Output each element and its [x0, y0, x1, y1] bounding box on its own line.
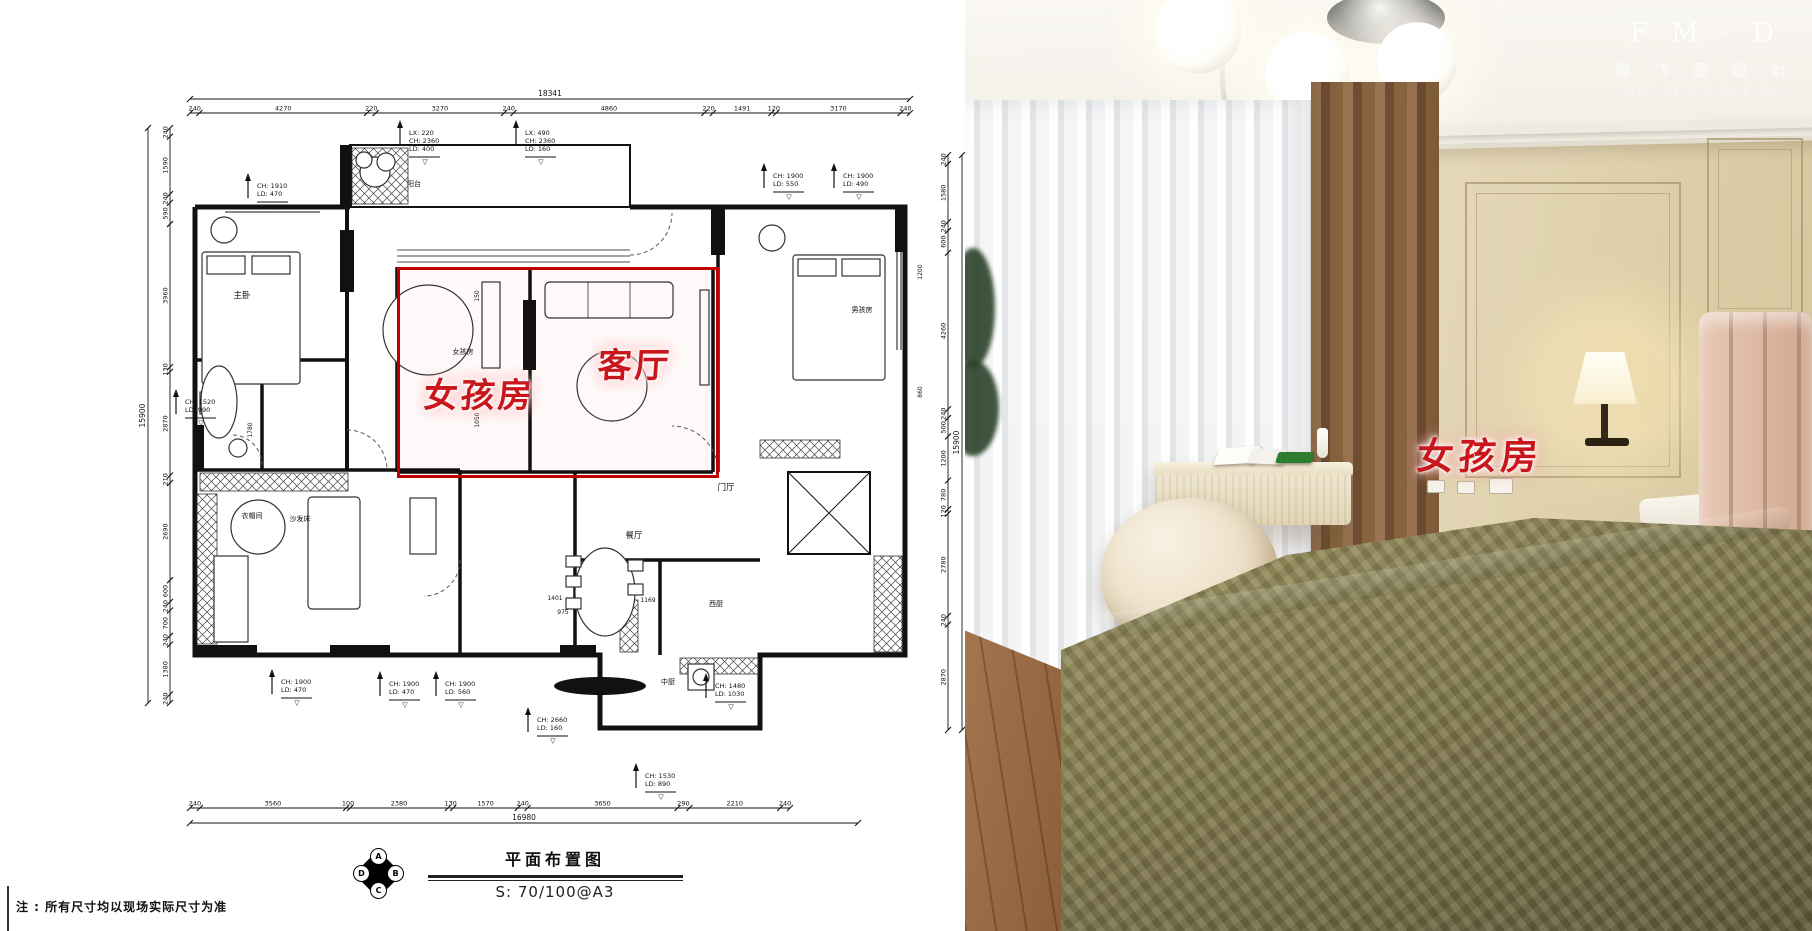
svg-text:500: 500 — [940, 421, 948, 433]
svg-text:1380: 1380 — [162, 661, 170, 678]
svg-text:130: 130 — [162, 363, 170, 375]
stamp-letter-a: A — [370, 848, 387, 865]
green-notebook — [1275, 452, 1315, 463]
svg-text:120: 120 — [940, 505, 948, 517]
svg-text:LD: 1030: LD: 1030 — [715, 690, 744, 698]
wall-socket — [1457, 481, 1475, 494]
stamp-diamond-icon: A B C D — [350, 846, 406, 902]
svg-text:主卧: 主卧 — [233, 290, 251, 301]
svg-text:▽: ▽ — [658, 793, 664, 801]
svg-text:门厅: 门厅 — [717, 482, 735, 493]
svg-text:240: 240 — [188, 105, 200, 113]
svg-text:780: 780 — [940, 489, 948, 501]
svg-text:CH: 1900: CH: 1900 — [281, 678, 311, 686]
svg-text:240: 240 — [940, 407, 948, 419]
svg-text:220: 220 — [702, 105, 714, 113]
svg-text:1570: 1570 — [477, 800, 494, 808]
svg-text:975: 975 — [557, 609, 569, 616]
svg-text:▽: ▽ — [270, 203, 276, 211]
watermark-en: HUI FEIMO DESIGN — [1615, 86, 1796, 95]
svg-text:16980: 16980 — [512, 813, 536, 822]
paper-edge-line — [7, 886, 9, 931]
svg-text:2380: 2380 — [391, 800, 408, 808]
svg-text:CH: 1900: CH: 1900 — [843, 172, 873, 180]
svg-text:LD: 560: LD: 560 — [445, 688, 470, 696]
svg-text:CH: 2660: CH: 2660 — [537, 716, 567, 724]
svg-text:1200: 1200 — [940, 450, 948, 467]
svg-text:3170: 3170 — [830, 105, 847, 113]
svg-text:4860: 4860 — [601, 105, 618, 113]
svg-text:240: 240 — [940, 220, 948, 232]
svg-text:240: 240 — [940, 153, 948, 165]
svg-text:4270: 4270 — [275, 105, 292, 113]
svg-text:240: 240 — [162, 634, 170, 646]
svg-text:2780: 2780 — [940, 556, 948, 573]
svg-text:120: 120 — [768, 105, 780, 113]
svg-text:240: 240 — [162, 692, 170, 704]
svg-text:衣帽间: 衣帽间 — [242, 511, 263, 520]
stamp-letter-d: D — [353, 865, 370, 882]
small-vase — [1317, 428, 1328, 458]
svg-text:590: 590 — [162, 207, 170, 219]
svg-text:2870: 2870 — [162, 415, 170, 432]
plan-label-living-room: 客厅 — [596, 338, 673, 387]
svg-text:LX: 490: LX: 490 — [525, 129, 550, 137]
plan-title: 平面布置图 — [420, 846, 690, 870]
svg-text:3650: 3650 — [594, 800, 611, 808]
svg-text:CH: 2360: CH: 2360 — [525, 137, 555, 145]
svg-text:860: 860 — [917, 386, 924, 398]
svg-text:▽: ▽ — [198, 419, 204, 427]
svg-text:130: 130 — [444, 800, 456, 808]
svg-text:240: 240 — [516, 800, 528, 808]
wall-socket — [1427, 480, 1445, 493]
svg-text:CH: 1530: CH: 1530 — [645, 772, 675, 780]
svg-text:700: 700 — [162, 617, 170, 629]
svg-text:1491: 1491 — [734, 105, 751, 113]
svg-text:1169: 1169 — [640, 597, 655, 604]
svg-text:餐厅: 餐厅 — [625, 531, 643, 541]
designer-watermark: F M · D 徽 飞 墨 設 計 HUI FEIMO DESIGN — [1615, 18, 1796, 95]
svg-text:LD: 550: LD: 550 — [773, 180, 798, 188]
floating-desk — [1153, 462, 1353, 475]
svg-text:240: 240 — [940, 614, 948, 626]
svg-text:阳台: 阳台 — [407, 179, 421, 188]
svg-text:240: 240 — [503, 105, 515, 113]
svg-text:▽: ▽ — [538, 158, 544, 166]
plan-scale: S: 70/100@A3 — [420, 883, 690, 901]
svg-text:240: 240 — [162, 600, 170, 612]
watermark-cn: 徽 飞 墨 設 計 — [1615, 57, 1796, 81]
svg-text:1200: 1200 — [917, 264, 924, 279]
svg-text:CH: 1900: CH: 1900 — [773, 172, 803, 180]
svg-text:15900: 15900 — [138, 403, 147, 427]
svg-text:沙发床: 沙发床 — [290, 514, 311, 523]
svg-text:240: 240 — [162, 192, 170, 204]
wall-molding-frame — [1707, 138, 1803, 320]
svg-text:西厨: 西厨 — [709, 600, 723, 608]
svg-text:3960: 3960 — [162, 287, 170, 304]
svg-text:LD: 400: LD: 400 — [409, 145, 434, 153]
svg-text:240: 240 — [162, 126, 170, 138]
svg-text:1590: 1590 — [162, 157, 170, 174]
watermark-logo: F M · D — [1615, 18, 1796, 49]
svg-text:▽: ▽ — [294, 699, 300, 707]
svg-text:CH: 1480: CH: 1480 — [715, 682, 745, 690]
svg-text:CH: 1900: CH: 1900 — [445, 680, 475, 688]
svg-text:LD: 470: LD: 470 — [281, 686, 306, 694]
svg-text:CH: 1520: CH: 1520 — [185, 398, 215, 406]
title-rule — [428, 875, 683, 881]
svg-text:CH: 1900: CH: 1900 — [389, 680, 419, 688]
stamp-letter-c: C — [370, 882, 387, 899]
svg-text:240: 240 — [899, 105, 911, 113]
floor-plan-panel: 1834124042702203270240486022014911203170… — [0, 0, 965, 931]
svg-text:100: 100 — [342, 800, 354, 808]
svg-text:240: 240 — [779, 800, 791, 808]
svg-text:▽: ▽ — [550, 737, 556, 745]
girl-room-photo: 女孩房 F M · D 徽 飞 墨 設 計 HUI FEIMO DESIGN — [965, 0, 1812, 931]
svg-text:LD: 490: LD: 490 — [843, 180, 868, 188]
svg-text:▽: ▽ — [402, 701, 408, 709]
svg-text:▽: ▽ — [422, 158, 428, 166]
svg-text:18341: 18341 — [538, 89, 562, 98]
svg-text:600: 600 — [940, 235, 948, 247]
svg-text:2690: 2690 — [162, 523, 170, 540]
plan-label-girl-room: 女孩房 — [422, 368, 536, 417]
design-presentation: 1834124042702203270240486022014911203170… — [0, 0, 1812, 931]
svg-text:220: 220 — [365, 105, 377, 113]
wall-socket — [1489, 478, 1513, 494]
svg-text:3560: 3560 — [265, 800, 282, 808]
svg-text:1401: 1401 — [547, 595, 562, 602]
svg-text:15900: 15900 — [952, 430, 961, 454]
svg-text:LD: 160: LD: 160 — [537, 724, 562, 732]
svg-text:CH: 2360: CH: 2360 — [409, 137, 439, 145]
svg-text:3270: 3270 — [432, 105, 449, 113]
stamp-letter-b: B — [387, 865, 404, 882]
svg-text:▽: ▽ — [856, 193, 862, 201]
svg-text:2870: 2870 — [940, 669, 948, 686]
svg-text:男孩房: 男孩房 — [852, 305, 873, 314]
svg-text:▽: ▽ — [458, 701, 464, 709]
photo-label-girl-room: 女孩房 — [1415, 426, 1545, 480]
wall-lamp-bracket — [1585, 438, 1629, 446]
svg-text:240: 240 — [189, 800, 201, 808]
plan-note: 注 : 所有尺寸均以现场实际尺寸为准 — [16, 898, 227, 915]
svg-text:210: 210 — [162, 473, 170, 485]
svg-text:LD: 990: LD: 990 — [185, 406, 210, 414]
svg-text:中厨: 中厨 — [661, 677, 675, 686]
svg-text:290: 290 — [677, 800, 689, 808]
svg-text:LD: 890: LD: 890 — [645, 780, 670, 788]
svg-text:CH: 1910: CH: 1910 — [257, 182, 287, 190]
svg-text:600: 600 — [162, 585, 170, 597]
titleblock: A B C D 平面布置图 S: 70/100@A3 — [340, 840, 700, 910]
svg-text:1780: 1780 — [247, 422, 254, 437]
svg-text:▽: ▽ — [728, 703, 734, 711]
svg-text:4260: 4260 — [940, 323, 948, 340]
svg-text:LD: 160: LD: 160 — [525, 145, 550, 153]
svg-text:1580: 1580 — [940, 185, 948, 202]
svg-text:LD: 470: LD: 470 — [389, 688, 414, 696]
svg-text:2210: 2210 — [726, 800, 743, 808]
svg-text:▽: ▽ — [786, 193, 792, 201]
svg-text:LX: 220: LX: 220 — [409, 129, 434, 137]
svg-text:LD: 470: LD: 470 — [257, 190, 282, 198]
